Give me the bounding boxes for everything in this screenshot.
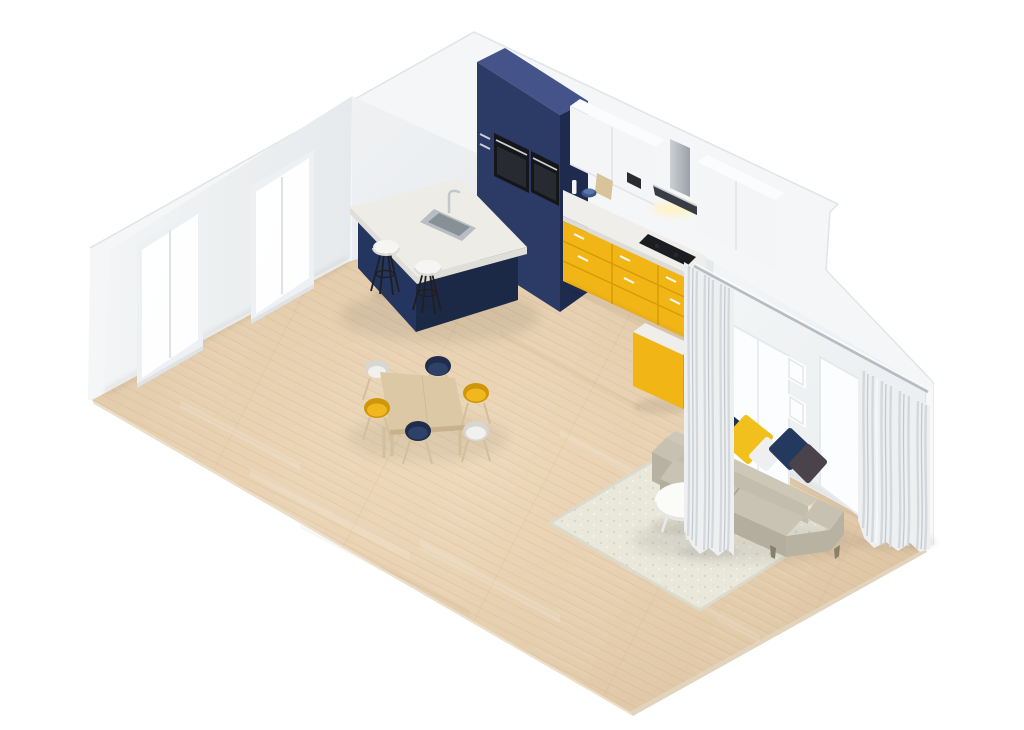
bottle [572, 180, 577, 194]
cooktop-burner [655, 244, 659, 248]
chair-seat [367, 404, 387, 417]
chair-seat [428, 363, 448, 376]
hood-chimney [670, 139, 690, 197]
chair-seat [408, 427, 428, 440]
stool-shadow [372, 291, 400, 299]
cooktop-burner [674, 253, 678, 257]
blue-bowl-rim [584, 189, 595, 195]
chair-seat [466, 427, 486, 440]
curtain-highlight [876, 379, 877, 543]
chair-seat [466, 389, 486, 402]
stool-shadow [414, 310, 442, 318]
apartment-render [0, 0, 1024, 730]
curtain-left [678, 262, 738, 559]
